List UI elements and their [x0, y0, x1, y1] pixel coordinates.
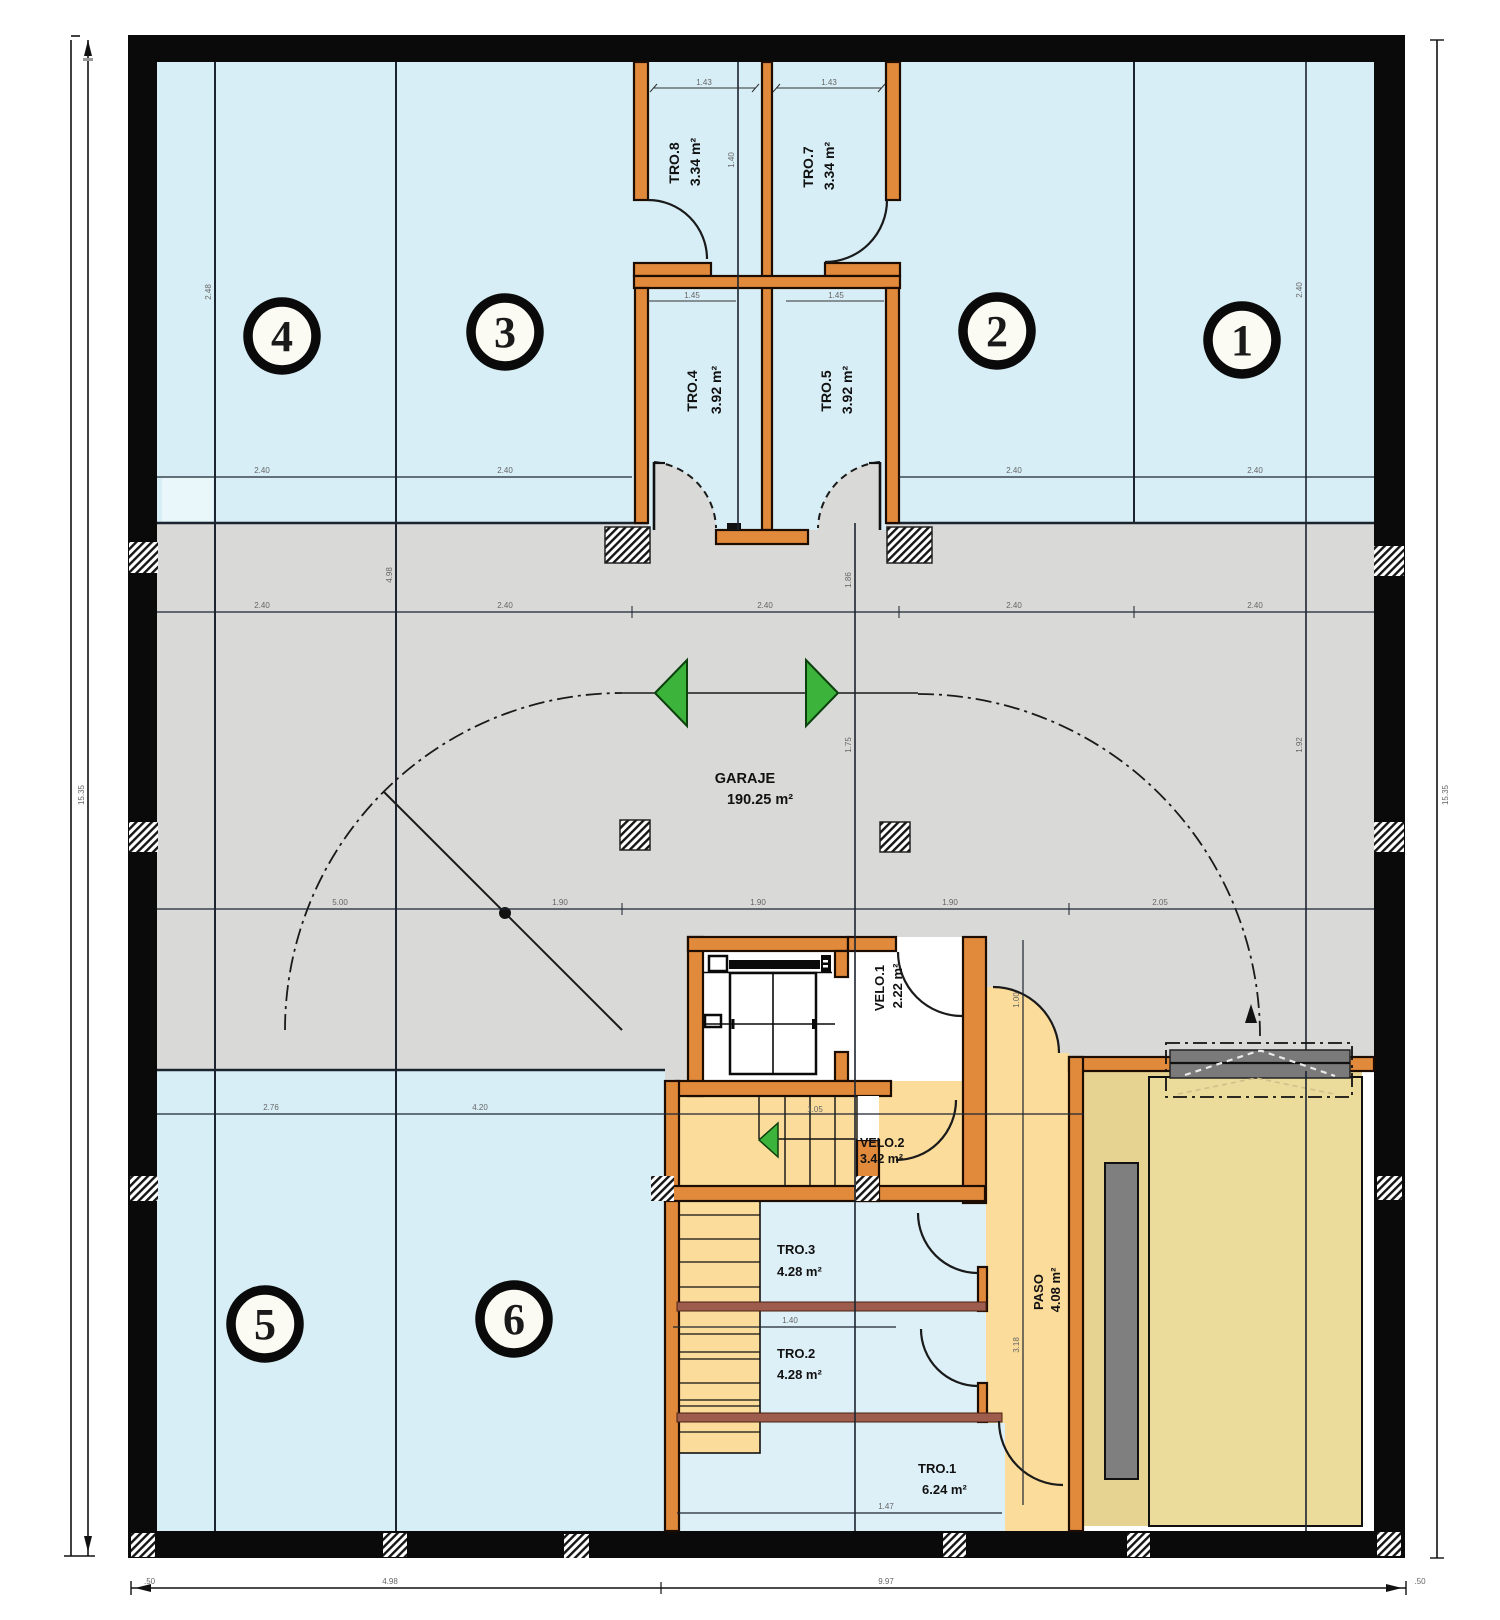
- svg-text:2.40: 2.40: [254, 601, 270, 610]
- svg-text:1.86: 1.86: [844, 572, 853, 588]
- svg-text:3.34 m²: 3.34 m²: [821, 142, 837, 191]
- svg-text:PASO: PASO: [1031, 1274, 1046, 1310]
- svg-text:3.18: 3.18: [1012, 1337, 1021, 1353]
- svg-text:4.20: 4.20: [472, 1103, 488, 1112]
- svg-text:6: 6: [503, 1295, 525, 1344]
- svg-text:5.00: 5.00: [332, 898, 348, 907]
- svg-text:1.40: 1.40: [727, 152, 736, 168]
- svg-text:4.08 m²: 4.08 m²: [1048, 1267, 1063, 1312]
- svg-text:.50: .50: [1414, 1577, 1426, 1586]
- svg-text:190.25 m²: 190.25 m²: [727, 792, 793, 808]
- svg-text:TRO.8: TRO.8: [666, 142, 682, 183]
- svg-text:1.90: 1.90: [942, 898, 958, 907]
- svg-text:1.47: 1.47: [878, 1502, 894, 1511]
- svg-text:1.90: 1.90: [750, 898, 766, 907]
- svg-text:6.24 m²: 6.24 m²: [922, 1482, 967, 1497]
- svg-text:TRO.3: TRO.3: [777, 1242, 815, 1257]
- svg-text:3.92 m²: 3.92 m²: [839, 366, 855, 415]
- svg-text:3.42 m²: 3.42 m²: [860, 1152, 903, 1166]
- svg-text:1: 1: [1231, 316, 1253, 365]
- svg-text:4.98: 4.98: [382, 1577, 398, 1586]
- svg-text:2.22 m²: 2.22 m²: [890, 963, 905, 1008]
- svg-text:4: 4: [271, 312, 293, 361]
- svg-text:2.40: 2.40: [497, 601, 513, 610]
- svg-text:2.40: 2.40: [1295, 282, 1304, 298]
- svg-text:4.98: 4.98: [385, 567, 394, 583]
- svg-text:2.40: 2.40: [1006, 601, 1022, 610]
- svg-text:1.45: 1.45: [684, 291, 700, 300]
- svg-text:2.40: 2.40: [1006, 466, 1022, 475]
- svg-text:2.40: 2.40: [254, 466, 270, 475]
- svg-text:1.05: 1.05: [807, 1105, 823, 1114]
- svg-text:1.40: 1.40: [782, 1316, 798, 1325]
- svg-text:VELO.1: VELO.1: [872, 965, 887, 1011]
- svg-text:TRO.2: TRO.2: [777, 1346, 815, 1361]
- svg-text:TRO.7: TRO.7: [800, 146, 816, 187]
- svg-text:TRO.5: TRO.5: [818, 370, 834, 411]
- svg-text:5: 5: [254, 1300, 276, 1349]
- svg-text:1.43: 1.43: [821, 78, 837, 87]
- svg-text:4.28 m²: 4.28 m²: [777, 1367, 822, 1382]
- svg-text:4.28 m²: 4.28 m²: [777, 1264, 822, 1279]
- svg-text:.50: .50: [144, 1577, 156, 1586]
- svg-text:2.48: 2.48: [204, 284, 213, 300]
- svg-text:1.92: 1.92: [1295, 737, 1304, 753]
- svg-text:GARAJE: GARAJE: [715, 771, 776, 787]
- svg-text:2.40: 2.40: [1247, 466, 1263, 475]
- svg-text:1.75: 1.75: [844, 737, 853, 753]
- svg-text:15.35: 15.35: [1441, 784, 1450, 805]
- svg-text:1.90: 1.90: [552, 898, 568, 907]
- svg-text:2.76: 2.76: [263, 1103, 279, 1112]
- svg-text:1.00: 1.00: [1012, 992, 1021, 1008]
- svg-text:15.35: 15.35: [77, 784, 86, 805]
- svg-text:VELO.2: VELO.2: [860, 1136, 905, 1150]
- svg-text:1.43: 1.43: [696, 78, 712, 87]
- svg-text:9.97: 9.97: [878, 1577, 894, 1586]
- svg-text:2: 2: [986, 307, 1008, 356]
- svg-text:2.40: 2.40: [1247, 601, 1263, 610]
- svg-text:2.40: 2.40: [497, 466, 513, 475]
- svg-text:3.92 m²: 3.92 m²: [708, 366, 724, 415]
- svg-text:2.05: 2.05: [1152, 898, 1168, 907]
- svg-text:TRO.1: TRO.1: [918, 1461, 956, 1476]
- svg-text:1.45: 1.45: [828, 291, 844, 300]
- svg-text:3: 3: [494, 308, 516, 357]
- svg-text:TRO.4: TRO.4: [684, 370, 700, 411]
- svg-text:2.40: 2.40: [757, 601, 773, 610]
- svg-text:3.34 m²: 3.34 m²: [687, 138, 703, 187]
